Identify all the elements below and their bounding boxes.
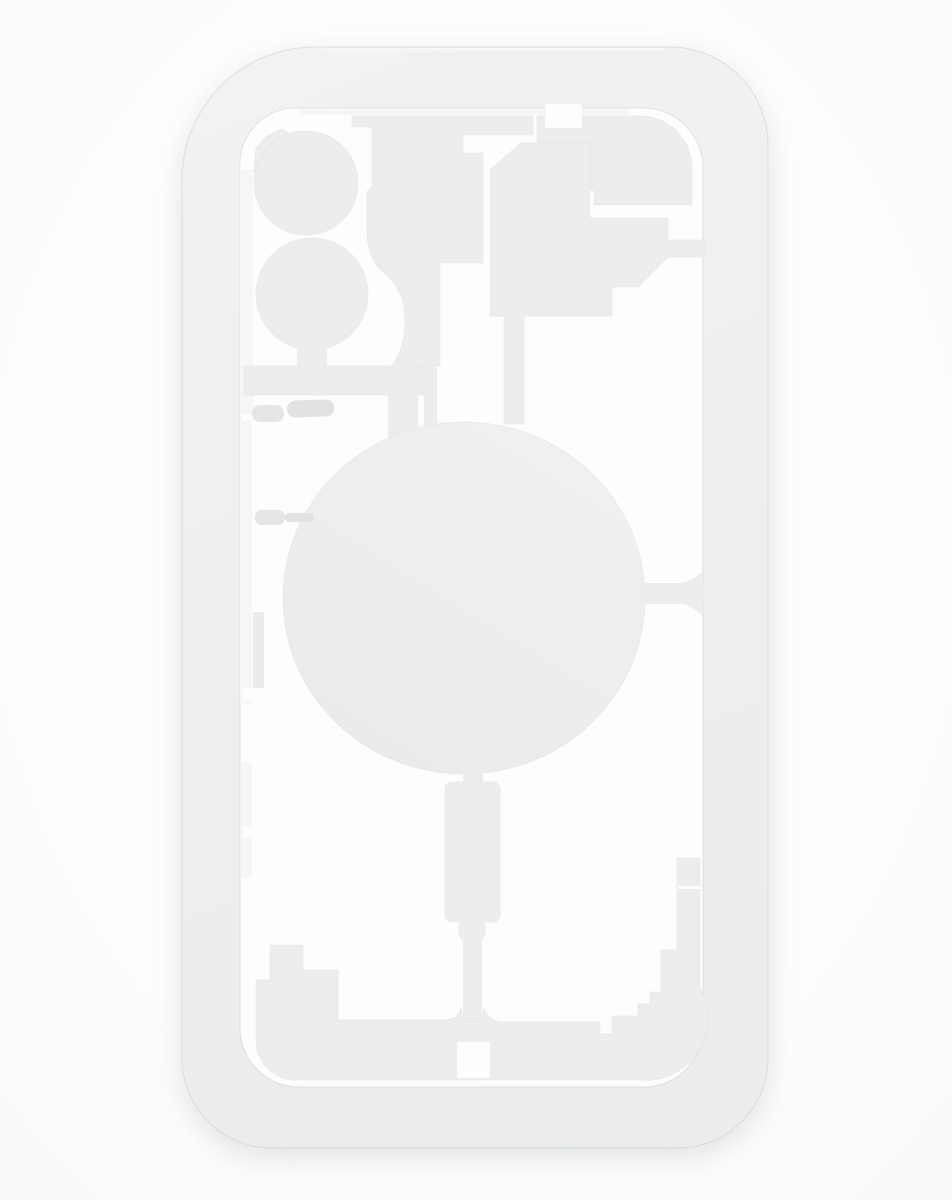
volume-button-rod-long <box>287 399 335 418</box>
photo-stage <box>0 0 952 1200</box>
left-wall-notch-1 <box>243 688 253 701</box>
top-right-notch-cut <box>545 104 582 128</box>
charging-coil-circle-island <box>283 422 645 774</box>
pill-island <box>445 782 500 922</box>
charge-port-hole <box>457 1042 490 1078</box>
right-rail-cut-hairline <box>678 886 702 889</box>
mold-photo <box>0 0 952 1200</box>
camera-upper-lens-island <box>254 131 358 235</box>
pill-bump <box>458 916 486 944</box>
left-wall-highlight-mid <box>240 420 252 704</box>
pill-lower-stem <box>463 940 482 1024</box>
volume-button-rod-short <box>252 405 284 422</box>
power-button-rod <box>255 510 285 525</box>
power-button-rod-pin <box>285 513 314 522</box>
camera-lower-lens-island <box>256 238 368 350</box>
left-wall-shade-sliver <box>253 612 264 688</box>
left-wall-highlight-lower <box>241 762 252 878</box>
circle-right-bridge <box>638 583 705 604</box>
pill-upper-stem <box>463 766 483 784</box>
left-wall-notch-2 <box>243 826 253 838</box>
